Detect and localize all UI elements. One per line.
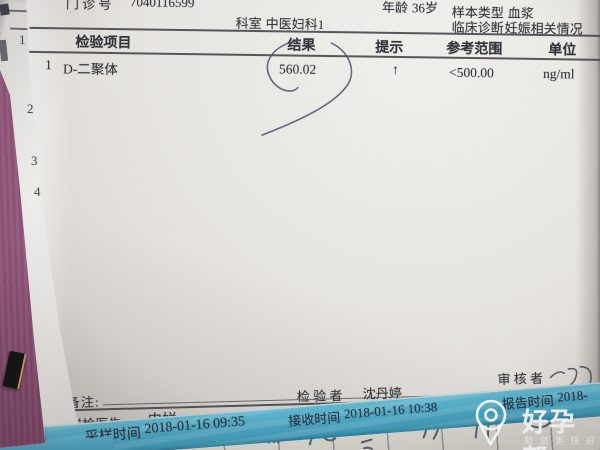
age-label: 年龄 [382,0,408,16]
unit-value: ng/ml [543,66,575,82]
watermark: 好孕帮 助 您 更 快 好 孕 [468,394,600,450]
col-header-range: 参考范围 [446,38,502,59]
outpatient-no-label: 门 诊 号 [66,0,112,13]
sampling-time-value: 2018-01-16 09:35 [144,414,246,438]
lab-report-paper: 门 诊 号 7040116599 年龄 36岁 样本类型 血浆 科室 中医妇科1… [0,0,600,450]
test-item: D-二聚体 [63,57,118,78]
row-number: 1 [45,57,52,73]
report-table: 门 诊 号 7040116599 年龄 36岁 样本类型 血浆 科室 中医妇科1… [0,0,600,208]
margin-row-number: 3 [31,153,38,169]
receive-time-label: 接收时间 [288,407,341,430]
reviewer-label: 审 核 者 [497,368,543,388]
pen-circle-annotation [234,29,386,151]
paper-edge-shadow [0,3,10,15]
location-pin-icon [468,396,516,448]
outpatient-no-value: 7040116599 [130,0,195,11]
age-value: 36岁 [412,0,438,17]
photo-of-lab-report: 1 2 3 4 门 诊 号 7040116599 年龄 36岁 样本类型 血浆 … [0,0,600,450]
binder-clip [2,351,26,390]
high-flag-arrow: ↑ [392,62,399,78]
margin-row-number: 1 [19,32,26,48]
reference-range: <500.00 [449,65,494,82]
col-header-item: 检验项目 [75,31,131,52]
watermark-tagline: 助 您 更 快 好 孕 [524,434,600,450]
margin-row-number: 4 [34,184,41,200]
receive-time-value: 2018-01-16 10:38 [343,399,437,422]
col-header-unit: 单位 [548,39,576,59]
